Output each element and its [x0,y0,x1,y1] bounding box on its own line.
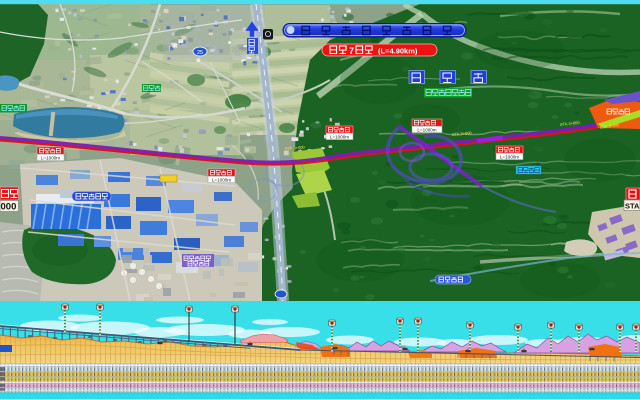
svg-text:L=1000m: L=1000m [212,177,231,182]
svg-text:(L=4.90km): (L=4.90km) [378,47,418,56]
svg-text:L=1000m: L=1000m [500,154,519,159]
svg-text:25: 25 [197,50,203,56]
svg-text:7: 7 [349,46,354,56]
svg-text:L=1000m: L=1000m [41,155,60,160]
svg-text:L=1000m: L=1000m [330,134,349,139]
svg-text:L=1000m: L=1000m [417,127,436,132]
svg-text:000: 000 [1,202,17,213]
svg-text:STA: STA [625,202,640,211]
